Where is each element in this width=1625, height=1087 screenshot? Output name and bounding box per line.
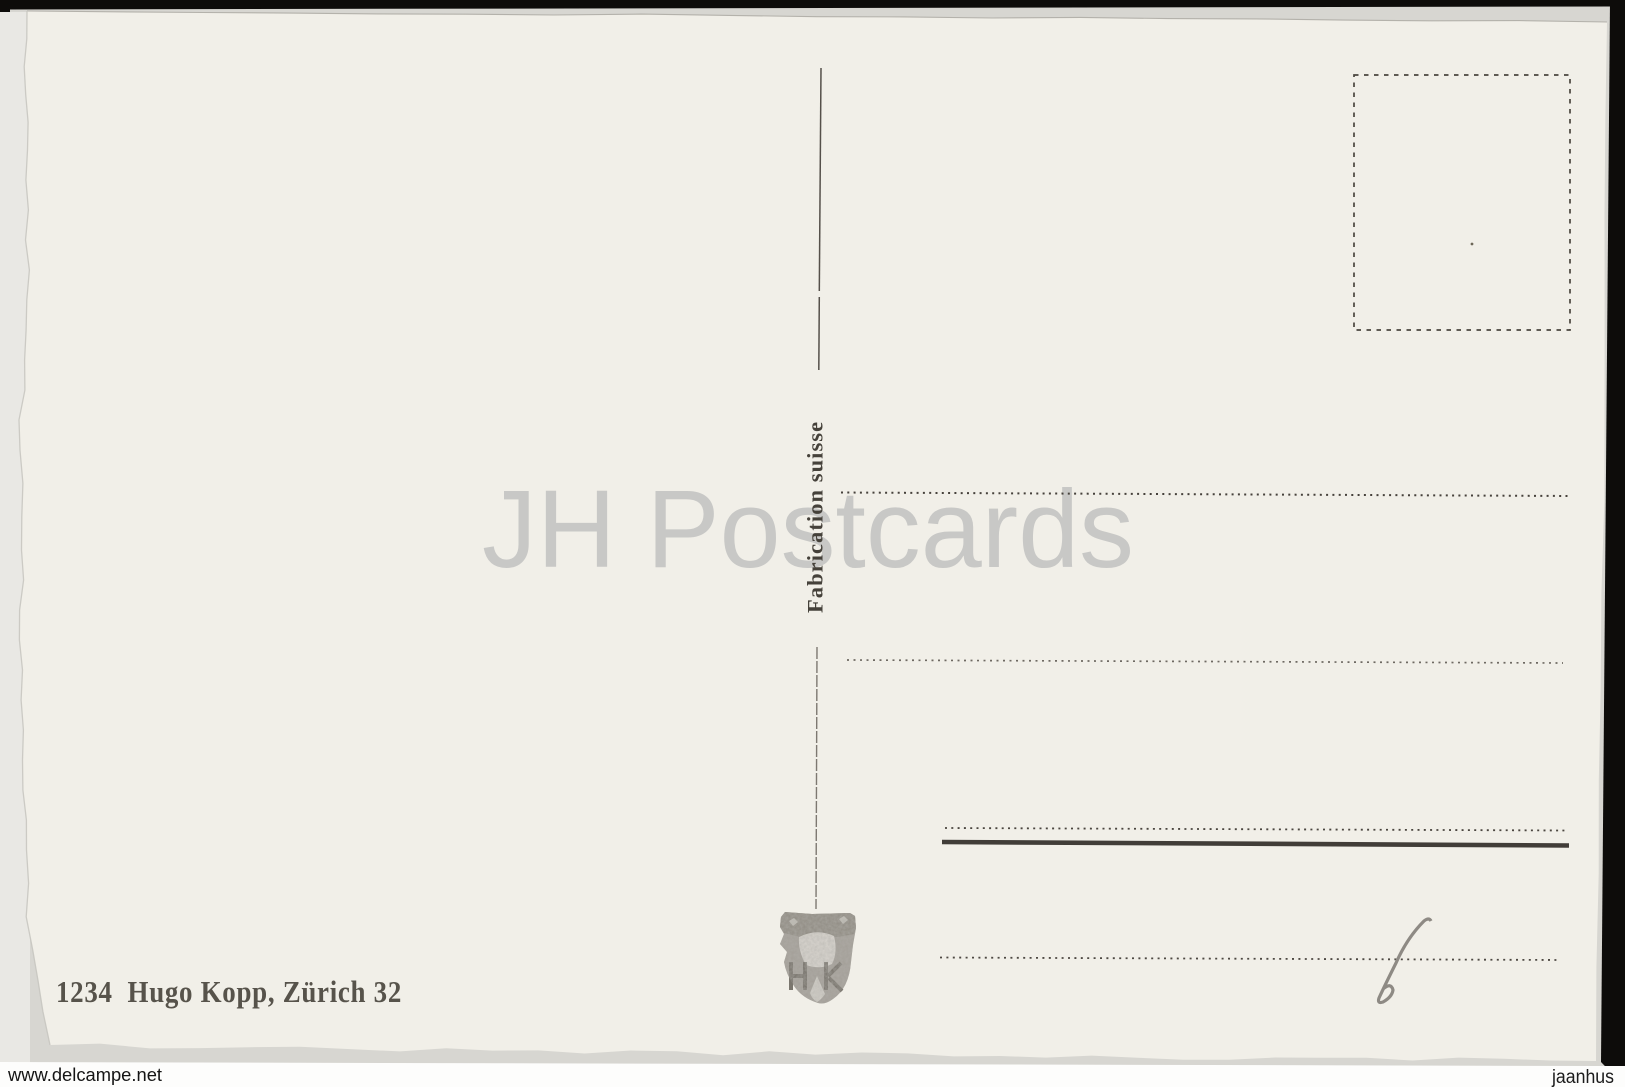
svg-text:www.delcampe.net: www.delcampe.net xyxy=(7,1064,162,1085)
svg-text:1234 Hugo Kopp, Zürich 32: 1234 Hugo Kopp, Zürich 32 xyxy=(56,975,402,1009)
svg-text:jaanhus: jaanhus xyxy=(1551,1067,1614,1087)
svg-text:Fabrication suisse: Fabrication suisse xyxy=(803,421,828,613)
